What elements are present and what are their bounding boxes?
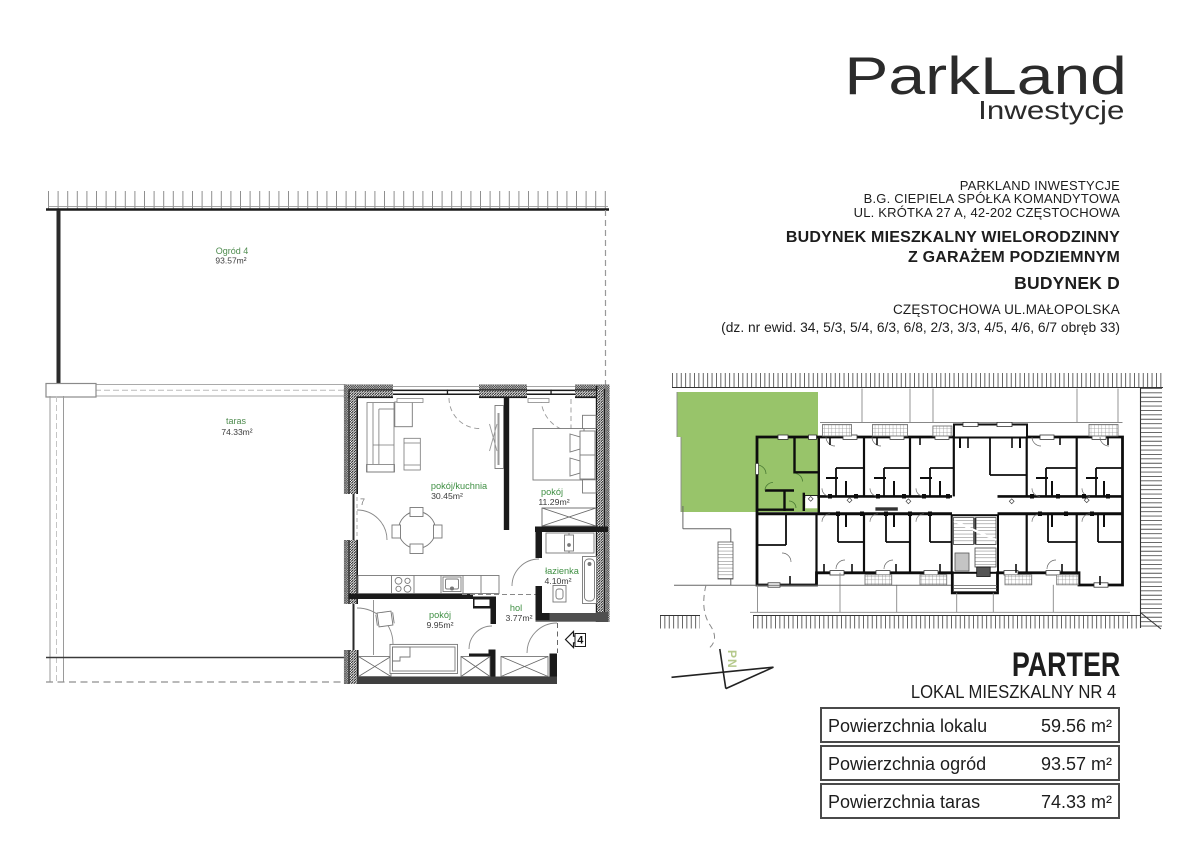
svg-text:PN: PN [725,650,739,669]
svg-text:30.45m²: 30.45m² [431,491,463,501]
svg-text:93.57m²: 93.57m² [215,256,246,266]
svg-text:74.33m²: 74.33m² [221,427,252,437]
svg-text:4: 4 [577,635,584,647]
svg-text:11.29m²: 11.29m² [538,497,569,507]
svg-text:pokój: pokój [541,487,563,497]
svg-text:pokój/kuchnia: pokój/kuchnia [431,481,488,491]
svg-text:Ogród 4: Ogród 4 [216,246,249,256]
svg-text:3.77m²: 3.77m² [505,613,532,623]
svg-text:hol: hol [510,603,522,613]
svg-text:4.10m²: 4.10m² [544,576,571,586]
svg-text:9.95m²: 9.95m² [426,620,453,630]
svg-text:7: 7 [360,497,365,507]
svg-text:łazienka: łazienka [545,566,580,576]
svg-text:taras: taras [226,416,247,426]
svg-text:pokój: pokój [429,610,451,620]
